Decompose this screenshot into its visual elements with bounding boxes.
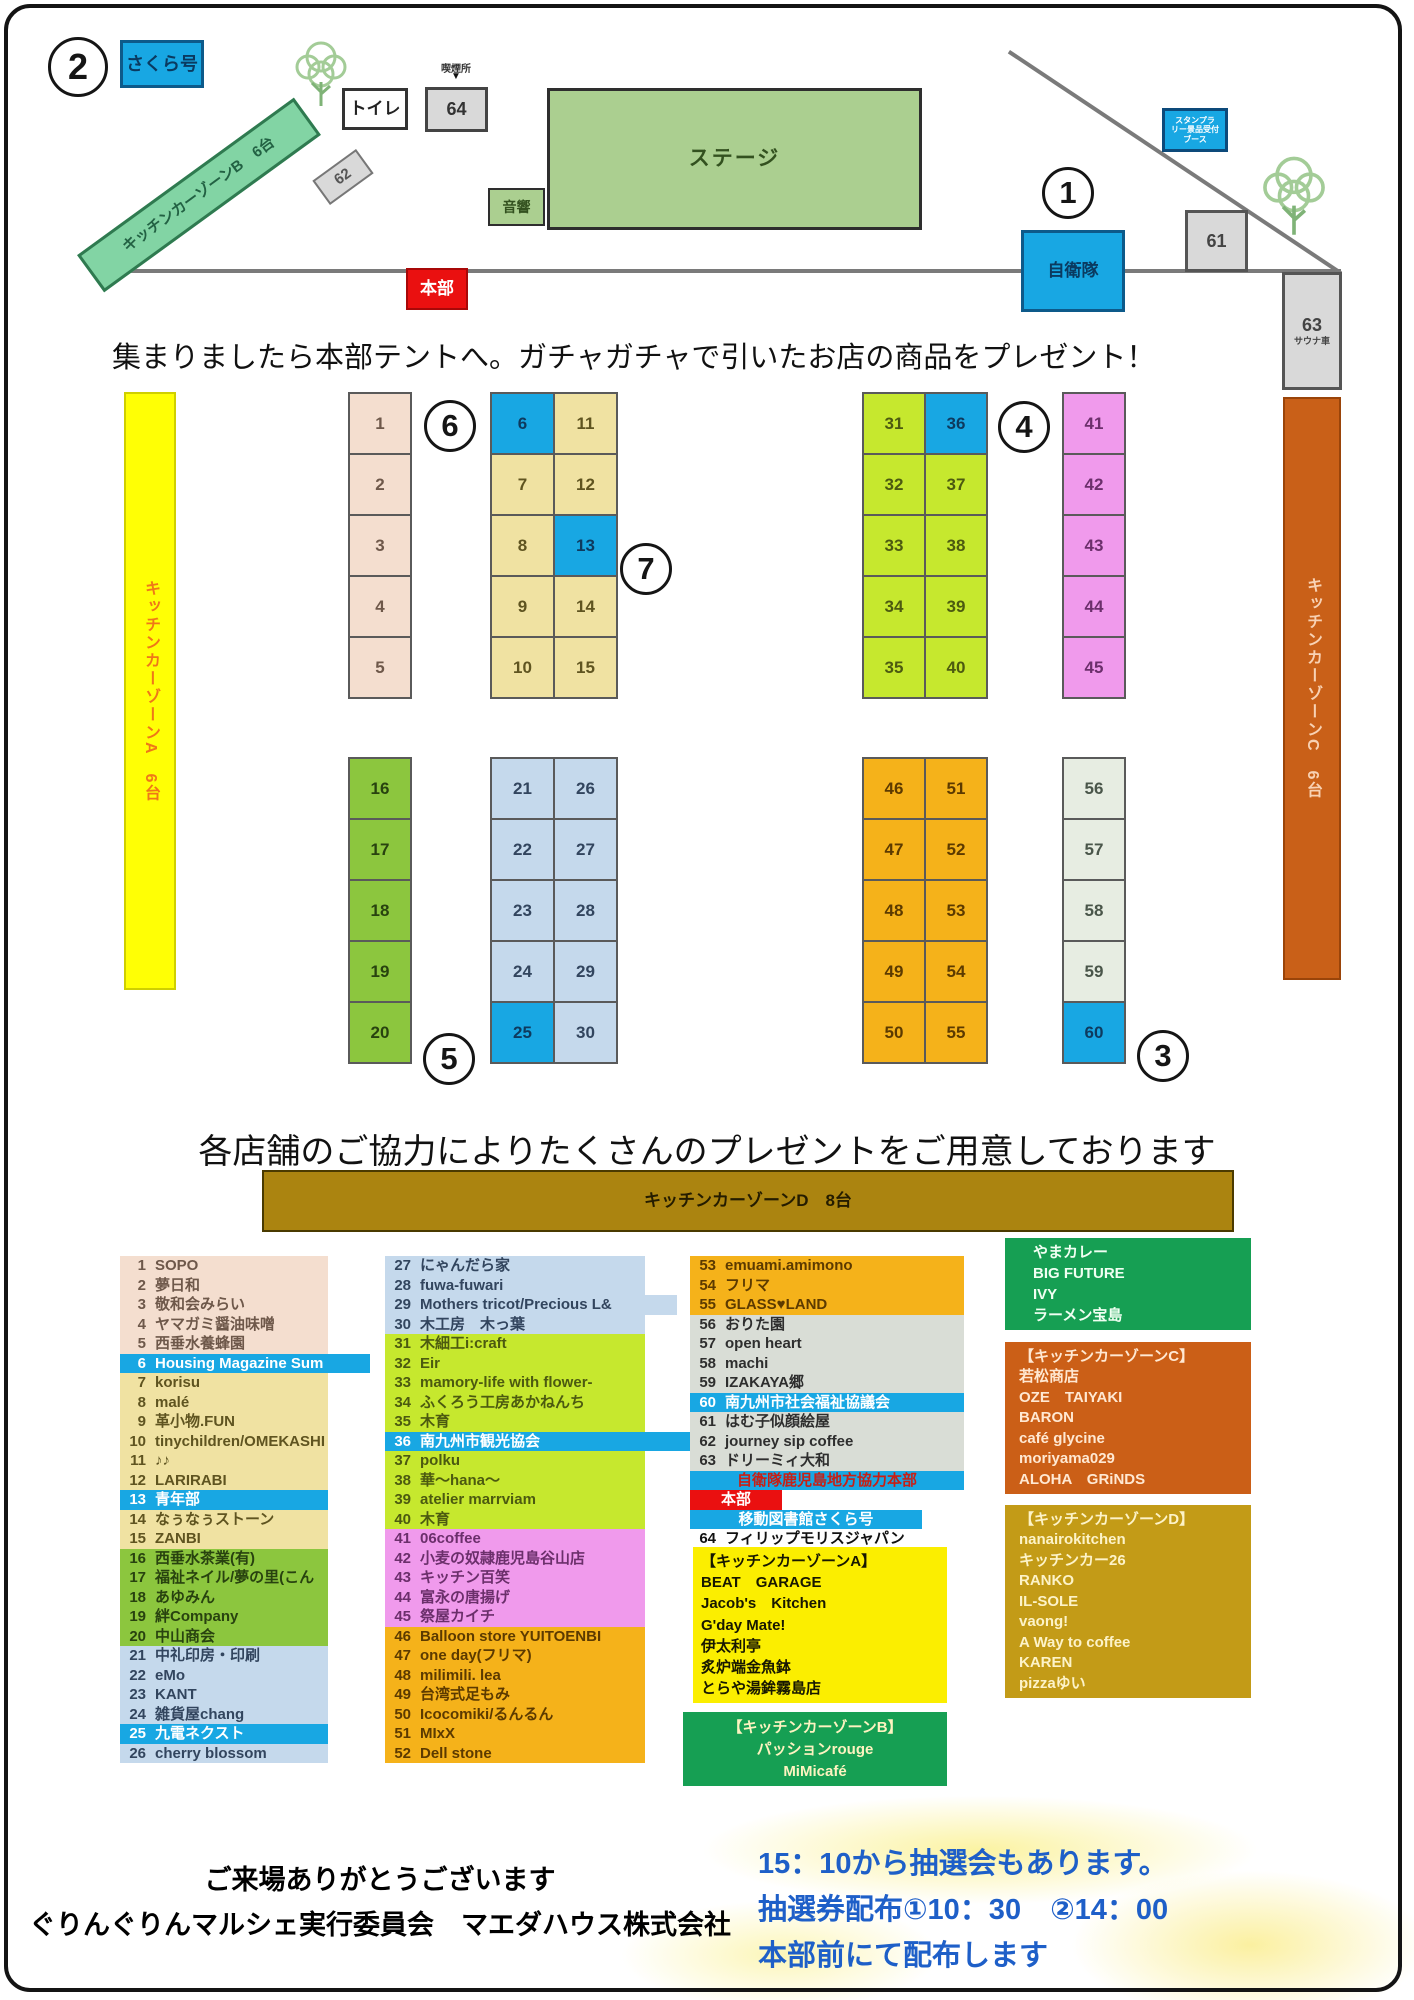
booth-cell-13: 13	[553, 514, 618, 577]
booth-cell-54: 54	[924, 940, 988, 1003]
shop-name: Icocomiki/るんるん	[420, 1707, 553, 1722]
booth-63-box: 63 サウナ車	[1282, 272, 1342, 390]
zone-box-shop-name: vaong!	[1019, 1612, 1251, 1633]
shop-number: 64	[690, 1531, 716, 1546]
booth-cell-1: 1	[348, 392, 412, 455]
zone-box-shop-name: パッションrouge	[683, 1738, 947, 1760]
lottery-info-line2: 抽選券配布①10：30 ②14：00	[758, 1886, 1398, 1928]
booth-cell-59: 59	[1062, 940, 1126, 1003]
gacha-notice: 集まりましたら本部テントへ。ガチャガチャで引いたお店の商品をプレゼント！	[112, 334, 1155, 376]
shop-list-row-24: 24雑貨屋chang	[120, 1705, 328, 1725]
shop-name: Housing Magazine Sum	[155, 1356, 323, 1371]
shop-list-row-4: 4ヤマガミ醤油味噌	[120, 1315, 328, 1335]
shop-list-row-16: 16西垂水茶業(有)	[120, 1549, 328, 1569]
circled-number-5: 5	[423, 1033, 475, 1085]
booth-64-box: 64	[425, 87, 488, 132]
shop-number: 25	[120, 1726, 146, 1741]
shop-name: tinychildren/OMEKASHI	[155, 1434, 325, 1449]
booth-cell-33: 33	[862, 514, 926, 577]
zone-box-shop-name: KAREN	[1019, 1653, 1251, 1674]
booth-cell-7: 7	[490, 453, 555, 516]
booth-cell-60: 60	[1062, 1001, 1126, 1064]
shop-name: 中礼印房・印刷	[155, 1648, 260, 1663]
shop-number: 51	[385, 1726, 411, 1741]
shop-list-row-46: 46Balloon store YUITOENBI	[385, 1627, 645, 1647]
shop-number: 35	[385, 1414, 411, 1429]
shop-list-row-39: 39atelier marrviam	[385, 1490, 645, 1510]
shop-number: 63	[690, 1453, 716, 1468]
shop-list-row-14: 14なぅなぅストーン	[120, 1510, 328, 1530]
booth-cell-32: 32	[862, 453, 926, 516]
shop-number: 10	[120, 1434, 146, 1449]
shop-name: ヤマガミ醤油味噌	[155, 1317, 275, 1332]
booth-cell-57: 57	[1062, 818, 1126, 881]
shop-number: 53	[690, 1258, 716, 1273]
booth-62-box: 62	[312, 149, 373, 205]
booth-cell-41: 41	[1062, 392, 1126, 455]
zone-box-shop-name: 若松商店	[1019, 1367, 1251, 1388]
zone-box-shop-name: ALOHA GRiNDS	[1019, 1469, 1251, 1490]
shop-name: フィリップモリスジャパン	[725, 1531, 905, 1546]
zone-box-shop-name: ラーメン宝島	[1033, 1305, 1251, 1326]
booth-cell-53: 53	[924, 879, 988, 942]
shop-name: あゆみん	[155, 1590, 215, 1605]
curry-shops-box: やまカレーBIG FUTUREIVYラーメン宝島	[1005, 1238, 1251, 1330]
shop-number: 56	[690, 1317, 716, 1332]
shop-list-row-2: 2夢日和	[120, 1276, 328, 1296]
shop-list-row-20: 20中山商会	[120, 1627, 328, 1647]
shop-number: 28	[385, 1278, 411, 1293]
shop-name: おりた園	[725, 1317, 785, 1332]
shop-name: 台湾式足もみ	[420, 1687, 510, 1702]
sakura-bus-box: さくら号	[120, 40, 204, 88]
shop-list-row-28: 28fuwa-fuwari	[385, 1276, 645, 1296]
booth-cell-44: 44	[1062, 575, 1126, 638]
shop-number: 3	[120, 1297, 146, 1312]
shop-name: KANT	[155, 1687, 197, 1702]
booth-cell-45: 45	[1062, 636, 1126, 699]
shop-name: ふくろう工房あかねんち	[420, 1395, 585, 1410]
booth-cell-24: 24	[490, 940, 555, 1003]
shop-list-row-19: 19絆Company	[120, 1607, 328, 1627]
shop-name: 革小物.FUN	[155, 1414, 235, 1429]
shop-name: MIxX	[420, 1726, 455, 1741]
booth-cell-30: 30	[553, 1001, 618, 1064]
shop-list-row-17: 17福祉ネイル/夢の里(こん	[120, 1568, 328, 1588]
organizer-line: ぐりんぐりんマルシェ実行委員会 マエダハウス株式会社	[20, 1903, 740, 1942]
shop-list-row-47: 47one day(フリマ)	[385, 1646, 645, 1666]
shop-list-row-8: 8malé	[120, 1393, 328, 1413]
shop-name: emuami.amimono	[725, 1258, 853, 1273]
kitchen-car-zone-c-box: 【キッチンカーゾーンC】若松商店OZE TAIYAKIBARONcafé gly…	[1005, 1342, 1251, 1494]
booth-cell-39: 39	[924, 575, 988, 638]
zone-box-header: 【キッチンカーゾーンA】	[701, 1551, 947, 1572]
shop-number: 9	[120, 1414, 146, 1429]
shop-name: フリマ	[725, 1278, 770, 1293]
shop-list-row-5: 5西垂水養蜂園	[120, 1334, 328, 1354]
smoking-arrow-icon: ▼	[442, 71, 470, 82]
booth-cell-14: 14	[553, 575, 618, 638]
shop-name: 木工房 木っ葉	[420, 1317, 525, 1332]
booth-cell-2: 2	[348, 453, 412, 516]
booth-63-number: 63	[1302, 315, 1322, 336]
shop-name: polku	[420, 1453, 460, 1468]
shop-number: 24	[120, 1707, 146, 1722]
shop-name: 小麦の奴隷鹿児島谷山店	[420, 1551, 585, 1566]
booth-cell-31: 31	[862, 392, 926, 455]
shop-number: 29	[385, 1297, 411, 1312]
zone-box-shop-name: G'day Mate!	[701, 1615, 947, 1636]
shop-number: 31	[385, 1336, 411, 1351]
shop-number: 58	[690, 1356, 716, 1371]
kitchen-car-zone-b-box: 【キッチンカーゾーンB】パッションrougeMiMicafé	[683, 1712, 947, 1786]
shop-number: 62	[690, 1434, 716, 1449]
shop-list-row-54: 54フリマ	[690, 1276, 964, 1296]
shop-list-row-35: 35木育	[385, 1412, 645, 1432]
booth-cell-8: 8	[490, 514, 555, 577]
booth-cell-37: 37	[924, 453, 988, 516]
shop-number: 47	[385, 1648, 411, 1663]
shop-number: 16	[120, 1551, 146, 1566]
shop-number: 45	[385, 1609, 411, 1624]
shop-number: 33	[385, 1375, 411, 1390]
shop-name: 中山商会	[155, 1629, 215, 1644]
shop-number: 32	[385, 1356, 411, 1371]
shop-list-row-59: 59IZAKAYA郷	[690, 1373, 964, 1393]
shop-number: 48	[385, 1668, 411, 1683]
shop-number: 40	[385, 1512, 411, 1527]
shop-number: 27	[385, 1258, 411, 1273]
booth-cell-9: 9	[490, 575, 555, 638]
kitchen-car-zone-c-bar: キッチンカーゾーンC 6台	[1283, 397, 1341, 980]
shop-number: 34	[385, 1395, 411, 1410]
shop-name: なぅなぅストーン	[155, 1512, 274, 1527]
thanks-line: ご来場ありがとうございます	[100, 1858, 660, 1897]
shop-name: one day(フリマ)	[420, 1648, 532, 1663]
shop-list-row-36: 36南九州市観光協会	[385, 1432, 690, 1452]
shop-name: Balloon store YUITOENBI	[420, 1629, 601, 1644]
kitchen-car-zone-d-box: 【キッチンカーゾーンD】nanairokitchenキッチンカー26RANKOI…	[1005, 1505, 1251, 1698]
shop-name: 西垂水養蜂園	[155, 1336, 245, 1351]
shop-list-row-62: 62journey sip coffee	[690, 1432, 964, 1452]
shop-list-row-3: 3敬和会みらい	[120, 1295, 328, 1315]
zone-box-shop-name: BEAT GARAGE	[701, 1572, 947, 1593]
toilet-box: トイレ	[342, 88, 408, 130]
zone-box-header: 【キッチンカーゾーンB】	[683, 1716, 947, 1738]
stamp-rally-booth-box: スタンプラ リー景品受付 ブース	[1162, 108, 1228, 152]
zone-box-shop-name: pizzaゆい	[1019, 1673, 1251, 1694]
shop-list-row-51: 51MIxX	[385, 1724, 645, 1744]
shop-number: 37	[385, 1453, 411, 1468]
shop-number: 23	[120, 1687, 146, 1702]
booth-cell-17: 17	[348, 818, 412, 881]
shop-list-row-45: 45祭屋カイチ	[385, 1607, 645, 1627]
zone-box-shop-name: nanairokitchen	[1019, 1530, 1251, 1551]
shop-list-band: 自衛隊鹿児島地方協力本部	[690, 1471, 964, 1491]
shop-name: 06coffee	[420, 1531, 481, 1546]
shop-name: 南九州市社会福祉協議会	[725, 1395, 890, 1410]
zone-box-header: 【キッチンカーゾーンC】	[1019, 1346, 1251, 1367]
shop-name: Eir	[420, 1356, 440, 1371]
booth-cell-35: 35	[862, 636, 926, 699]
shop-list-row-53: 53emuami.amimono	[690, 1256, 964, 1276]
zone-box-shop-name: moriyama029	[1019, 1449, 1251, 1470]
zone-box-header: 【キッチンカーゾーンD】	[1019, 1509, 1251, 1530]
booth-cell-47: 47	[862, 818, 926, 881]
shop-number: 22	[120, 1668, 146, 1683]
shop-list-row-48: 48milimili. lea	[385, 1666, 645, 1686]
shop-list-row-22: 22eMo	[120, 1666, 328, 1686]
booth-cell-27: 27	[553, 818, 618, 881]
booth-cell-6: 6	[490, 392, 555, 455]
shop-list-row-60: 60南九州市社会福祉協議会	[690, 1393, 964, 1413]
shop-list-row-55: 55GLASS♥LAND	[690, 1295, 964, 1315]
booth-61-box: 61	[1185, 210, 1248, 272]
shop-number: 8	[120, 1395, 146, 1410]
shop-list-row-50: 50Icocomiki/るんるん	[385, 1705, 645, 1725]
shop-list-row-58: 58machi	[690, 1354, 964, 1374]
shop-number: 18	[120, 1590, 146, 1605]
shop-name: 木育	[420, 1512, 450, 1527]
shop-number: 61	[690, 1414, 716, 1429]
zone-box-shop-name: 炙炉端金魚鉢	[701, 1657, 947, 1678]
shop-name: ♪♪	[155, 1453, 170, 1468]
shop-list-row-49: 49台湾式足もみ	[385, 1685, 645, 1705]
booth-cell-18: 18	[348, 879, 412, 942]
shop-number: 36	[385, 1434, 411, 1449]
shop-number: 59	[690, 1375, 716, 1390]
event-flyer: { "colors": { "peach": ["#f4decf", "#6e5…	[0, 0, 1414, 2000]
shop-name: 敬和会みらい	[155, 1297, 245, 1312]
stamp-rally-line3: ブース	[1183, 135, 1207, 144]
shop-name: 青年部	[155, 1492, 200, 1507]
zone-box-shop-name: IVY	[1033, 1284, 1251, 1305]
booth-cell-25: 25	[490, 1001, 555, 1064]
headquarters-box: 本部	[406, 268, 468, 310]
shop-list-row-25: 25九電ネクスト	[120, 1724, 328, 1744]
booth-cell-23: 23	[490, 879, 555, 942]
shop-name: korisu	[155, 1375, 200, 1390]
booth-cell-29: 29	[553, 940, 618, 1003]
shop-list-row-9: 9革小物.FUN	[120, 1412, 328, 1432]
shop-name: GLASS♥LAND	[725, 1297, 827, 1312]
shop-name: open heart	[725, 1336, 802, 1351]
shop-number: 52	[385, 1746, 411, 1761]
booth-cell-38: 38	[924, 514, 988, 577]
shop-name: Mothers tricot/Precious L&	[420, 1297, 612, 1312]
zone-box-shop-name: やまカレー	[1033, 1242, 1251, 1263]
booth-cell-48: 48	[862, 879, 926, 942]
zone-box-shop-name: OZE TAIYAKI	[1019, 1387, 1251, 1408]
shop-list-row-42: 42小麦の奴隷鹿児島谷山店	[385, 1549, 645, 1569]
circled-number-3: 3	[1137, 1030, 1189, 1082]
booth-cell-12: 12	[553, 453, 618, 516]
shop-name: はむ子似顔絵屋	[725, 1414, 830, 1429]
circled-number-2: 2	[48, 37, 108, 97]
shop-list-row-32: 32Eir	[385, 1354, 645, 1374]
booth-cell-42: 42	[1062, 453, 1126, 516]
zone-box-shop-name: IL-SOLE	[1019, 1591, 1251, 1612]
zone-box-shop-name: BIG FUTURE	[1033, 1263, 1251, 1284]
circled-number-1: 1	[1042, 167, 1094, 219]
booth-cell-36: 36	[924, 392, 988, 455]
shop-list-row-18: 18あゆみん	[120, 1588, 328, 1608]
shop-name: fuwa-fuwari	[420, 1278, 503, 1293]
shop-name: 南九州市観光協会	[420, 1434, 540, 1449]
shop-list-row-43: 43キッチン百笑	[385, 1568, 645, 1588]
shop-list-row-33: 33mamory-life with flower-	[385, 1373, 645, 1393]
shop-list-row-11: 11♪♪	[120, 1451, 328, 1471]
shop-name: 九電ネクスト	[155, 1726, 245, 1741]
shop-name: 華〜hana〜	[420, 1473, 500, 1488]
booth-cell-20: 20	[348, 1001, 412, 1064]
shop-list-row-61: 61はむ子似顔絵屋	[690, 1412, 964, 1432]
shop-number: 19	[120, 1609, 146, 1624]
shop-number: 39	[385, 1492, 411, 1507]
shop-name: Dell stone	[420, 1746, 492, 1761]
shop-number: 54	[690, 1278, 716, 1293]
zone-box-shop-name: キッチンカー26	[1019, 1550, 1251, 1571]
shop-list-row-56: 56おりた園	[690, 1315, 964, 1335]
booth-cell-51: 51	[924, 757, 988, 820]
shop-list-row-13: 13青年部	[120, 1490, 328, 1510]
shop-name: 祭屋カイチ	[420, 1609, 495, 1624]
shop-number: 43	[385, 1570, 411, 1585]
kitchen-car-zone-a-box: 【キッチンカーゾーンA】BEAT GARAGEJacob's KitchenG'…	[693, 1547, 947, 1703]
shop-list-row-12: 12LARIRABI	[120, 1471, 328, 1491]
zone-box-shop-name: café glycine	[1019, 1428, 1251, 1449]
booth-cell-50: 50	[862, 1001, 926, 1064]
booth-cell-21: 21	[490, 757, 555, 820]
sauna-car-label: サウナ車	[1294, 336, 1330, 346]
event-map: 2 1 6 7 4 5 3 さくら号 トイレ 喫煙所 ▼ 64 ステージ 音響 …	[0, 0, 1414, 1100]
shop-number: 38	[385, 1473, 411, 1488]
shop-list-row-57: 57open heart	[690, 1334, 964, 1354]
circled-number-6: 6	[424, 400, 476, 452]
shop-number: 5	[120, 1336, 146, 1351]
shop-list-row-26: 26cherry blossom	[120, 1744, 328, 1764]
lottery-info-line3: 本部前にて配布します	[758, 1932, 1398, 1974]
kitchen-car-zone-a-bar: キッチンカーゾーンA 6台	[124, 392, 176, 990]
shop-number: 12	[120, 1473, 146, 1488]
shop-list-row-15: 15ZANBI	[120, 1529, 328, 1549]
shop-name: 木育	[420, 1414, 450, 1429]
shop-name: cherry blossom	[155, 1746, 267, 1761]
shop-list-row-29: 29Mothers tricot/Precious L&	[385, 1295, 677, 1315]
shop-number: 11	[120, 1453, 146, 1468]
shop-number: 6	[120, 1356, 146, 1371]
shop-number: 20	[120, 1629, 146, 1644]
shop-list-row-10: 10tinychildren/OMEKASHI	[120, 1432, 328, 1452]
shop-name: 福祉ネイル/夢の里(こん	[155, 1570, 314, 1585]
shop-name: にゃんだら家	[420, 1258, 510, 1273]
shop-name: 富永の唐揚げ	[420, 1590, 510, 1605]
shop-number: 13	[120, 1492, 146, 1507]
zone-box-shop-name: 伊太利亭	[701, 1636, 947, 1657]
stamp-rally-line2: リー景品受付	[1171, 125, 1219, 134]
zone-box-shop-name: BARON	[1019, 1408, 1251, 1429]
shop-name: atelier marrviam	[420, 1492, 536, 1507]
shop-list-row-27: 27にゃんだら家	[385, 1256, 645, 1276]
shop-list-row-21: 21中礼印房・印刷	[120, 1646, 328, 1666]
booth-cell-55: 55	[924, 1001, 988, 1064]
shop-name: eMo	[155, 1668, 185, 1683]
booth-cell-43: 43	[1062, 514, 1126, 577]
shop-name: 絆Company	[155, 1609, 238, 1624]
booth-cell-22: 22	[490, 818, 555, 881]
shop-list-row-64: 64フィリップモリスジャパン	[690, 1529, 964, 1549]
booth-cell-58: 58	[1062, 879, 1126, 942]
shop-number: 4	[120, 1317, 146, 1332]
shop-list-row-6: 6Housing Magazine Sum	[120, 1354, 370, 1374]
road-horizontal-line	[112, 269, 1341, 273]
shop-list-row-44: 44富永の唐揚げ	[385, 1588, 645, 1608]
shop-number: 15	[120, 1531, 146, 1546]
tree-icon	[1252, 150, 1336, 242]
booth-cell-46: 46	[862, 757, 926, 820]
shop-number: 21	[120, 1648, 146, 1663]
kitchen-car-zone-d-bar: キッチンカーゾーンD 8台	[262, 1170, 1234, 1232]
shop-name: ZANBI	[155, 1531, 201, 1546]
shop-name: milimili. lea	[420, 1668, 501, 1683]
shop-name: キッチン百笑	[420, 1570, 510, 1585]
self-defense-force-box: 自衛隊	[1021, 230, 1125, 312]
circled-number-4: 4	[998, 401, 1050, 453]
shop-number: 2	[120, 1278, 146, 1293]
booth-cell-5: 5	[348, 636, 412, 699]
kitchen-car-zone-b-bar: キッチンカーゾーンB 6台	[77, 98, 321, 293]
shop-number: 49	[385, 1687, 411, 1702]
shop-number: 44	[385, 1590, 411, 1605]
shop-list-row-7: 7korisu	[120, 1373, 328, 1393]
shop-number: 55	[690, 1297, 716, 1312]
shop-number: 46	[385, 1629, 411, 1644]
shop-number: 42	[385, 1551, 411, 1566]
shop-number: 41	[385, 1531, 411, 1546]
booth-cell-28: 28	[553, 879, 618, 942]
shop-name: 雑貨屋chang	[155, 1707, 244, 1722]
booth-cell-15: 15	[553, 636, 618, 699]
shop-number: 17	[120, 1570, 146, 1585]
zone-box-shop-name: RANKO	[1019, 1571, 1251, 1592]
booth-cell-34: 34	[862, 575, 926, 638]
shop-number: 57	[690, 1336, 716, 1351]
booth-cell-10: 10	[490, 636, 555, 699]
shop-name: 西垂水茶業(有)	[155, 1551, 255, 1566]
shop-list-row-31: 31木細工i:craft	[385, 1334, 645, 1354]
zone-box-shop-name: とらや湯鉾霧島店	[701, 1678, 947, 1699]
shop-name: SOPO	[155, 1258, 198, 1273]
zone-box-shop-name: Jacob's Kitchen	[701, 1593, 947, 1614]
shop-name: LARIRABI	[155, 1473, 227, 1488]
shop-list-row-37: 37polku	[385, 1451, 645, 1471]
stage-box: ステージ	[547, 88, 922, 230]
shop-number: 50	[385, 1707, 411, 1722]
shop-list-row-30: 30木工房 木っ葉	[385, 1315, 645, 1335]
circled-number-7: 7	[620, 543, 672, 595]
shop-name: mamory-life with flower-	[420, 1375, 593, 1390]
shop-list-heading: 各店舗のご協力によりたくさんのプレゼントをご用意しております	[0, 1124, 1414, 1173]
booth-cell-52: 52	[924, 818, 988, 881]
shop-number: 30	[385, 1317, 411, 1332]
booth-cell-4: 4	[348, 575, 412, 638]
booth-cell-26: 26	[553, 757, 618, 820]
shop-list-row-1: 1SOPO	[120, 1256, 328, 1276]
shop-name: journey sip coffee	[725, 1434, 853, 1449]
shop-list-row-34: 34ふくろう工房あかねんち	[385, 1393, 645, 1413]
shop-name: 木細工i:craft	[420, 1336, 507, 1351]
booth-cell-19: 19	[348, 940, 412, 1003]
